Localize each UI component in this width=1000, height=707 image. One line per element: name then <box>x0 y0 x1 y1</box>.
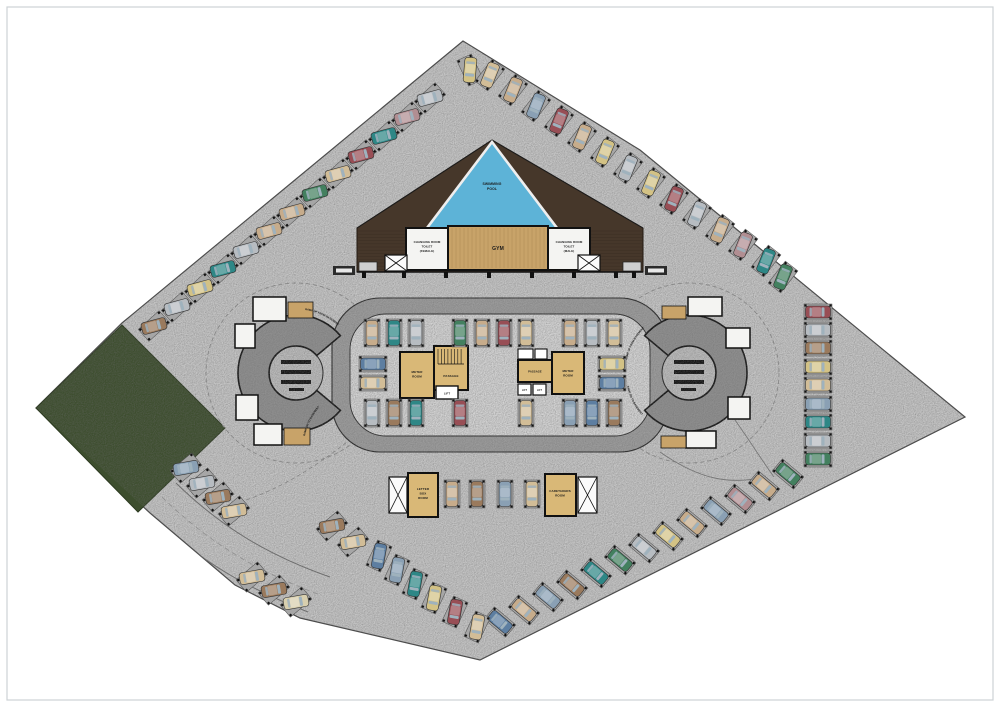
stall-post <box>359 375 361 377</box>
stall-post <box>421 424 423 426</box>
stall-post <box>829 464 831 466</box>
car <box>606 399 622 427</box>
stall-post <box>804 446 806 448</box>
stall-post <box>518 399 520 401</box>
car-roof <box>565 407 575 416</box>
stall-post <box>384 375 386 377</box>
car-windshield <box>822 307 825 316</box>
stall-post <box>619 424 621 426</box>
car-rear-window <box>390 405 399 407</box>
stall-post <box>469 505 471 507</box>
car-windshield <box>477 337 486 340</box>
car-rear-window <box>810 344 812 353</box>
stall-post <box>359 356 361 358</box>
car-windshield <box>527 498 536 501</box>
car-roof <box>587 327 597 336</box>
car-roof <box>477 327 487 336</box>
stall-post <box>497 505 499 507</box>
car <box>606 319 622 347</box>
stall-post <box>386 424 388 426</box>
car-windshield <box>822 343 825 352</box>
stall-post <box>465 424 467 426</box>
changing-male-label-2: TOILET <box>564 245 575 249</box>
meter-left-label-1: METER <box>412 370 424 374</box>
stall-post <box>510 480 512 482</box>
car-windshield <box>472 498 481 501</box>
room-right-s <box>686 431 716 448</box>
car-windshield <box>367 417 376 420</box>
end-niche-left <box>359 262 377 271</box>
stall-post <box>829 377 831 379</box>
stall-post <box>606 319 608 321</box>
stall-post <box>804 414 806 416</box>
car-windshield <box>565 417 574 420</box>
stall-post <box>496 319 498 321</box>
stall-post <box>386 399 388 401</box>
car <box>562 319 578 347</box>
room-left-sw <box>254 424 282 445</box>
caretakers-label-1: CARETAKERS <box>549 489 571 493</box>
car-roof <box>812 362 821 372</box>
car-roof <box>527 488 537 497</box>
stall-post <box>619 344 621 346</box>
car <box>804 304 832 320</box>
car-rear-window <box>368 405 377 407</box>
car-roof <box>429 591 440 602</box>
car-roof <box>812 436 821 446</box>
car-rear-window <box>810 308 812 317</box>
stall-post <box>623 356 625 358</box>
stall-post <box>399 424 401 426</box>
stall-post <box>509 319 511 321</box>
lift-right-label-1: LIFT <box>522 390 528 392</box>
car-windshield <box>565 337 574 340</box>
car <box>364 399 380 427</box>
car-rear-window <box>810 326 812 335</box>
car-roof <box>812 399 821 409</box>
site-plan-canvas: SWIMMING POOL CHANGING ROOM TOILET <box>0 0 1000 707</box>
car-rear-window <box>610 325 619 327</box>
car-windshield <box>616 359 619 368</box>
car-windshield <box>822 454 825 463</box>
stall-post <box>444 480 446 482</box>
stall-post <box>619 319 621 321</box>
stall-post <box>384 369 386 371</box>
shaft-box-right <box>578 255 600 271</box>
stall-post <box>421 344 423 346</box>
car-roof <box>367 359 376 369</box>
stall-post <box>598 388 600 390</box>
stall-post <box>465 319 467 321</box>
car <box>804 377 832 393</box>
car-roof <box>812 307 821 317</box>
stall-post <box>474 344 476 346</box>
car-windshield <box>609 417 618 420</box>
car-roof <box>411 327 421 336</box>
stall-post <box>524 505 526 507</box>
car-roof <box>389 407 399 416</box>
meter-right-label-2: ROOM <box>563 374 573 378</box>
car-roof <box>410 577 421 588</box>
car-windshield <box>377 359 380 368</box>
shaft-box-left <box>385 255 407 271</box>
stall-post <box>562 424 564 426</box>
car <box>359 356 387 372</box>
car-roof <box>392 563 403 574</box>
shaft-box-bottom-right <box>578 477 597 513</box>
stall-post <box>518 319 520 321</box>
car-roof <box>499 327 509 336</box>
core-left: METER ROOM PASSAGE LIFT <box>400 346 468 399</box>
car-windshield <box>447 498 456 501</box>
letter-box-label-1: LETTER <box>417 487 430 491</box>
stall-post <box>623 369 625 371</box>
stall-post <box>804 340 806 342</box>
stall-post <box>408 424 410 426</box>
stall-post <box>377 399 379 401</box>
pool-label-1: SWIMMING <box>483 182 502 186</box>
stall-post <box>518 344 520 346</box>
car-roof <box>812 417 821 427</box>
stall-post <box>623 388 625 390</box>
changing-female-label-2: TOILET <box>422 245 433 249</box>
car-rear-window <box>810 418 812 427</box>
car-roof <box>500 488 510 497</box>
car-rear-window <box>500 325 509 327</box>
car-roof <box>812 343 821 353</box>
stall-post <box>496 344 498 346</box>
stall-post <box>597 344 599 346</box>
stall-post <box>562 399 564 401</box>
stall-post <box>562 319 564 321</box>
car-roof <box>195 478 206 489</box>
car-roof <box>227 506 238 517</box>
car-windshield <box>367 337 376 340</box>
car-roof <box>325 521 336 532</box>
stall-post <box>575 344 577 346</box>
site-plan-page: SWIMMING POOL CHANGING ROOM TOILET <box>0 0 1000 707</box>
stall-post <box>452 399 454 401</box>
stall-post <box>386 344 388 346</box>
stall-post <box>829 353 831 355</box>
stall-post <box>562 344 564 346</box>
stall-post <box>597 399 599 401</box>
car-rear-window <box>810 381 812 390</box>
car <box>804 451 832 467</box>
car-windshield <box>822 362 825 371</box>
car-rear-window <box>810 455 812 464</box>
stall-post <box>531 319 533 321</box>
car-roof <box>565 327 575 336</box>
changing-female-label-1: CHANGING ROOM <box>414 240 441 244</box>
car <box>364 319 380 347</box>
car-rear-window <box>368 325 377 327</box>
stall-post <box>829 451 831 453</box>
room-right-n <box>688 297 722 316</box>
car-rear-window <box>528 486 537 488</box>
car-roof <box>472 620 483 631</box>
pool-label-2: POOL <box>487 187 497 191</box>
car <box>497 480 513 508</box>
car-roof <box>606 378 615 388</box>
stall-post <box>597 319 599 321</box>
meter-right-label-1: METER <box>563 369 575 373</box>
stall-post <box>829 433 831 435</box>
stall-post <box>829 396 831 398</box>
stall-post <box>377 424 379 426</box>
car-rear-window <box>566 325 575 327</box>
stall-post <box>623 375 625 377</box>
stall-post <box>829 414 831 416</box>
car-roof <box>367 407 377 416</box>
car-windshield <box>499 337 508 340</box>
stall-post <box>482 505 484 507</box>
stall-post <box>377 319 379 321</box>
car-rear-window <box>456 405 465 407</box>
car-rear-window <box>522 325 531 327</box>
car-windshield <box>521 337 530 340</box>
duct-box-right-1 <box>518 349 533 359</box>
room-right-e <box>728 397 750 419</box>
changing-male-label-1: CHANGING ROOM <box>556 240 583 244</box>
gym-label: GYM <box>492 246 504 252</box>
stall-post <box>452 319 454 321</box>
stall-post <box>531 399 533 401</box>
bench-left <box>333 266 355 275</box>
car-windshield <box>389 337 398 340</box>
stall-post <box>619 399 621 401</box>
stall-post <box>531 344 533 346</box>
stall-post <box>537 505 539 507</box>
car-roof <box>465 64 475 74</box>
stall-post <box>575 424 577 426</box>
car <box>584 319 600 347</box>
car-windshield <box>822 380 825 389</box>
stall-post <box>399 344 401 346</box>
stall-post <box>482 480 484 482</box>
car <box>804 340 832 356</box>
stall-post <box>829 317 831 319</box>
car-roof <box>812 454 821 464</box>
stall-post <box>364 424 366 426</box>
stall-post <box>359 369 361 371</box>
car <box>804 359 832 375</box>
car <box>452 319 468 347</box>
car-rear-window <box>810 437 812 446</box>
stall-post <box>584 399 586 401</box>
car-windshield <box>822 325 825 334</box>
car-rear-window <box>456 325 465 327</box>
car <box>804 322 832 338</box>
car-windshield <box>822 436 825 445</box>
stall-post <box>452 344 454 346</box>
car-rear-window <box>588 405 597 407</box>
car-roof <box>606 359 615 369</box>
car-roof <box>346 537 357 548</box>
car <box>408 319 424 347</box>
stall-post <box>518 424 520 426</box>
car-rear-window <box>604 379 606 388</box>
duct-box-right-2 <box>535 349 547 359</box>
stall-post <box>804 451 806 453</box>
car-windshield <box>521 417 530 420</box>
stall-post <box>598 369 600 371</box>
car-windshield <box>411 417 420 420</box>
car <box>598 375 626 391</box>
car-roof <box>609 327 619 336</box>
car-roof <box>245 572 256 583</box>
stall-post <box>359 388 361 390</box>
car <box>474 319 490 347</box>
car-roof <box>812 380 821 390</box>
stall-post <box>829 322 831 324</box>
car-windshield <box>411 337 420 340</box>
stall-post <box>469 480 471 482</box>
stall-post <box>829 390 831 392</box>
end-niche-right <box>623 262 641 271</box>
car-windshield <box>609 337 618 340</box>
car-rear-window <box>501 486 510 488</box>
car <box>598 356 626 372</box>
stall-post <box>575 319 577 321</box>
stall-post <box>384 388 386 390</box>
car <box>518 319 534 347</box>
car-rear-window <box>365 360 367 369</box>
car-windshield <box>455 417 464 420</box>
car <box>804 396 832 412</box>
stall-post <box>584 319 586 321</box>
car <box>359 375 387 391</box>
car <box>469 480 485 508</box>
car-roof <box>267 585 278 596</box>
car-roof <box>411 407 421 416</box>
car-rear-window <box>478 325 487 327</box>
stall-post <box>465 399 467 401</box>
stall-post <box>606 344 608 346</box>
car-roof <box>455 407 465 416</box>
stall-post <box>606 399 608 401</box>
stall-post <box>804 353 806 355</box>
deck-right-nw <box>662 306 686 319</box>
car-rear-window <box>604 360 606 369</box>
car-roof <box>389 327 399 336</box>
stall-post <box>575 399 577 401</box>
car-roof <box>521 327 531 336</box>
stall-post <box>829 359 831 361</box>
car-rear-window <box>566 405 575 407</box>
stall-post <box>829 335 831 337</box>
car-roof <box>455 327 465 336</box>
car <box>584 399 600 427</box>
passage-right-label: PASSAGE <box>528 370 542 374</box>
car-windshield <box>455 337 464 340</box>
shaft-box-bottom-left <box>389 477 407 513</box>
bench-right <box>645 266 667 275</box>
car <box>518 399 534 427</box>
car-roof <box>521 407 531 416</box>
car-rear-window <box>390 325 399 327</box>
stall-post <box>364 344 366 346</box>
car <box>452 399 468 427</box>
car-windshield <box>389 417 398 420</box>
caretakers-label-2: ROOM <box>555 494 565 498</box>
stall-post <box>804 304 806 306</box>
car-windshield <box>822 399 825 408</box>
stall-post <box>598 356 600 358</box>
room-left-nw <box>253 297 286 321</box>
stall-post <box>474 319 476 321</box>
stall-post <box>421 319 423 321</box>
car-rear-window <box>810 400 812 409</box>
car-roof <box>812 325 821 335</box>
car-windshield <box>616 378 619 387</box>
stall-post <box>829 409 831 411</box>
stall-post <box>804 322 806 324</box>
car-roof <box>450 605 461 616</box>
lift-left-label: LIFT <box>444 392 450 396</box>
stall-post <box>829 340 831 342</box>
room-right-ne <box>726 328 750 348</box>
stall-post <box>804 427 806 429</box>
car-rear-window <box>473 486 482 488</box>
stall-post <box>444 505 446 507</box>
car <box>804 414 832 430</box>
stall-post <box>457 505 459 507</box>
letter-box-label-2: BOX <box>420 492 427 496</box>
car <box>386 399 402 427</box>
car-rear-window <box>588 325 597 327</box>
letter-box-label-3: ROOM <box>418 496 428 500</box>
stall-post <box>584 424 586 426</box>
stall-post <box>386 319 388 321</box>
car <box>496 319 512 347</box>
stall-post <box>804 377 806 379</box>
car <box>444 480 460 508</box>
car <box>562 399 578 427</box>
stall-post <box>465 344 467 346</box>
car-roof <box>289 597 300 608</box>
stall-post <box>597 424 599 426</box>
stall-post <box>497 480 499 482</box>
stall-post <box>804 335 806 337</box>
car-windshield <box>377 378 380 387</box>
stall-post <box>408 319 410 321</box>
car-rear-window <box>412 405 421 407</box>
car-windshield <box>500 498 509 501</box>
car-windshield <box>822 417 825 426</box>
stall-post <box>537 480 539 482</box>
stall-post <box>531 424 533 426</box>
core-right: METER ROOM PASSAGE LIFT LIFT <box>518 349 584 395</box>
car-roof <box>374 549 385 560</box>
stall-post <box>510 505 512 507</box>
car <box>408 399 424 427</box>
stall-post <box>524 480 526 482</box>
stall-post <box>452 424 454 426</box>
stall-post <box>804 396 806 398</box>
car <box>804 433 832 449</box>
deck-right-sw <box>661 436 686 448</box>
car-roof <box>587 407 597 416</box>
car-roof <box>447 488 457 497</box>
car-rear-window <box>412 325 421 327</box>
stall-post <box>487 319 489 321</box>
stall-post <box>804 433 806 435</box>
changing-male-label-3: (MALE) <box>564 249 575 253</box>
stall-post <box>804 359 806 361</box>
car <box>386 319 402 347</box>
stall-post <box>384 356 386 358</box>
